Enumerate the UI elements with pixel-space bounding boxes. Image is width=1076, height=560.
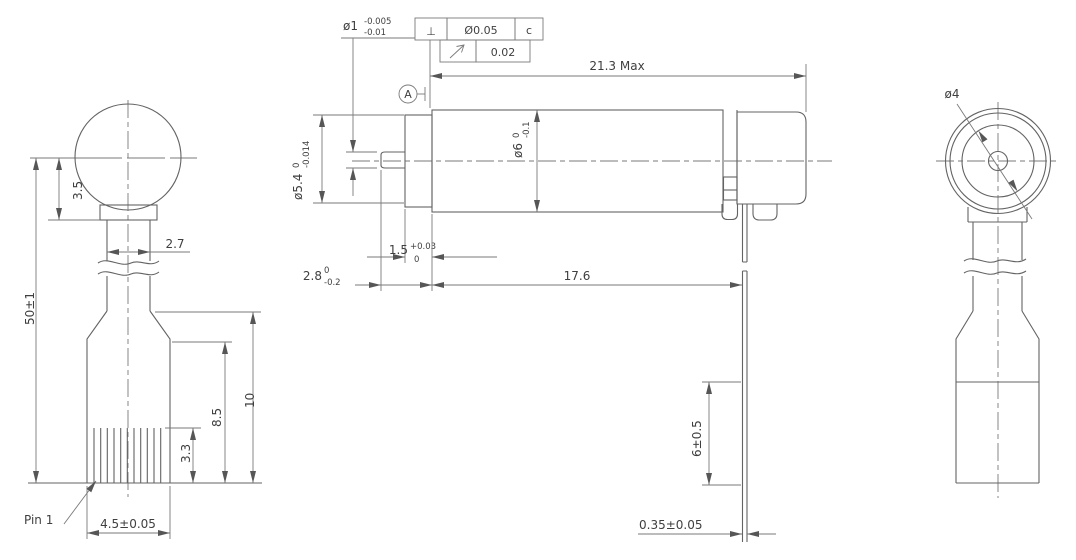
perpendicularity-icon: ⊥ <box>426 25 436 38</box>
body-dia-main: ø6 <box>511 143 525 158</box>
dim-max-length-label: 21.3 Max <box>589 59 644 73</box>
dim-base-width-label: 4.5±0.05 <box>100 517 156 531</box>
cap-tab-1 <box>722 204 738 220</box>
motor-engineering-drawing: 50±1 3.5 2.7 8.5 10 3.3 <box>0 0 1076 560</box>
bushing-length-lower-tol: 0 <box>414 255 419 265</box>
technical-drawing-page: 50±1 3.5 2.7 8.5 10 3.3 <box>0 0 1076 560</box>
dim-arrowhead-upper <box>979 131 988 143</box>
dim-head-offset-label: 3.5 <box>71 181 85 200</box>
fcf-perpendicularity-tolerance: Ø0.05 <box>464 24 497 37</box>
dim-head-offset: 3.5 <box>48 158 100 220</box>
neck-outline <box>107 220 150 311</box>
flange-dia-lower-tol: -0.014 <box>302 141 312 168</box>
datum-a-symbol: A <box>399 85 425 103</box>
shaft-outline <box>381 152 405 168</box>
dim-lead-thickness: 0.35±0.05 <box>638 518 776 534</box>
break-line-lower <box>964 271 1026 275</box>
dim-lead-length-label: 6±0.5 <box>690 420 704 457</box>
flange-dia-main: ø5.4 <box>291 174 305 200</box>
body-outline <box>87 311 170 483</box>
pin1-leader-line <box>64 481 96 524</box>
shaft-dia-lower-tol: -0.01 <box>364 28 386 38</box>
pin-ribs <box>94 428 161 483</box>
circular-runout-icon <box>450 45 464 58</box>
shaft-dia-upper-tol: -0.005 <box>364 17 391 27</box>
pin1-label: Pin 1 <box>24 513 53 527</box>
body-dia-lower-tol: -0.1 <box>522 121 532 138</box>
extension-lines <box>313 115 404 203</box>
dim-inner-dia-label: ø4 <box>945 87 960 101</box>
fcf-runout-tolerance: 0.02 <box>491 46 516 59</box>
shaft-dia-main: ø1 <box>343 19 358 33</box>
callout-shaft-dia: ø1 -0.005 -0.01 <box>341 17 415 196</box>
end-cap-outline <box>737 112 806 204</box>
extension-lines <box>87 486 170 539</box>
extension-lines <box>346 152 377 168</box>
body-outline <box>956 311 1039 483</box>
dim-inner-dia: ø4 <box>945 87 1032 219</box>
rear-ring-detail <box>724 177 738 200</box>
dim-neck-width-label: 2.7 <box>165 237 184 251</box>
neck-outline <box>973 222 1022 311</box>
dim-base-width: 4.5±0.05 <box>87 486 170 539</box>
dim-body-total: 10 <box>155 312 261 483</box>
dim-rib-height-label: 3.3 <box>179 444 193 463</box>
bushing-length-main: 1.5 <box>389 243 408 257</box>
lead-wire-upper <box>743 204 748 262</box>
feature-control-frames: ⊥ Ø0.05 c 0.02 <box>415 18 543 108</box>
dim-max-length: 21.3 Max <box>430 59 806 112</box>
shaft-protrusion-lower-tol: -0.2 <box>324 278 341 288</box>
flange-dia-upper-tol: 0 <box>292 163 302 168</box>
dim-total-height-label: 50±1 <box>23 292 37 325</box>
dim-body-upper-label: 8.5 <box>210 408 224 427</box>
dim-body-length: 17.6 <box>432 269 742 285</box>
lead-wire-lower <box>743 271 748 542</box>
cap-tab-2 <box>753 204 777 220</box>
front-view: ø1 -0.005 -0.01 ⊥ Ø0.05 c 0.02 <box>291 17 832 542</box>
dim-line <box>957 104 1032 219</box>
end-view: ø4 <box>936 87 1059 498</box>
dim-lead-thickness-label: 0.35±0.05 <box>639 518 703 532</box>
dim-lead-length: 6±0.5 <box>690 382 741 485</box>
pin1-callout: Pin 1 <box>24 481 96 527</box>
body-dia-upper-tol: 0 <box>512 133 522 138</box>
dim-body-total-label: 10 <box>243 393 257 408</box>
break-line-lower <box>98 272 159 276</box>
datum-a-label: A <box>404 88 412 101</box>
dim-body-length-label: 17.6 <box>564 269 591 283</box>
break-line-upper <box>98 261 159 265</box>
dim-neck-width: 2.7 <box>107 237 190 252</box>
extension-lines <box>702 382 741 485</box>
fcf-datum-ref: c <box>526 24 532 37</box>
left-side-view: 50±1 3.5 2.7 8.5 10 3.3 <box>23 100 262 539</box>
collar-outline <box>100 205 157 220</box>
shaft-protrusion-main: 2.8 <box>303 269 322 283</box>
shaft-protrusion-upper-tol: 0 <box>324 266 329 276</box>
break-line-upper <box>964 259 1026 263</box>
dim-flange-dia: ø5.4 0 -0.014 <box>291 115 404 203</box>
dim-total-height: 50±1 <box>23 158 37 483</box>
